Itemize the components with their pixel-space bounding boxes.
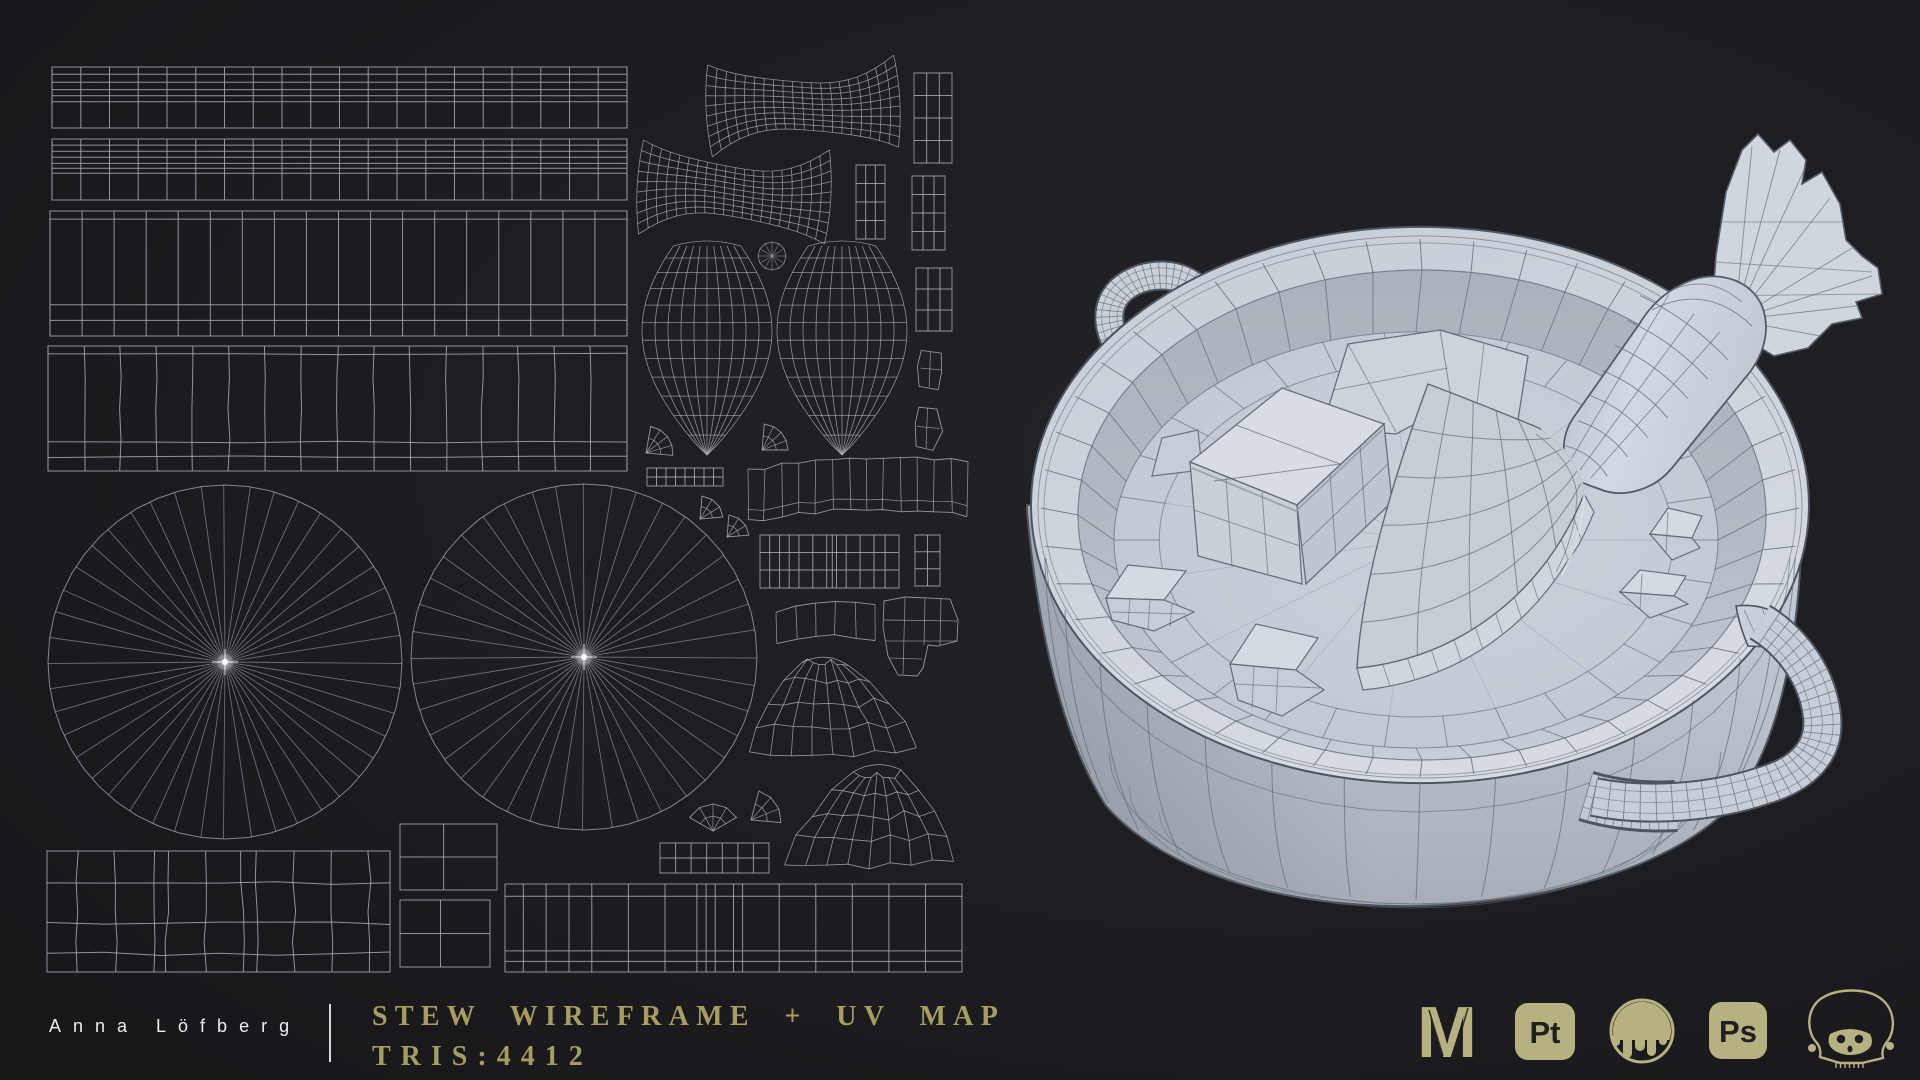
svg-text:M: M	[1417, 993, 1477, 1073]
svg-text:Ps: Ps	[1719, 1014, 1757, 1049]
svg-text:Pt: Pt	[1530, 1015, 1561, 1050]
